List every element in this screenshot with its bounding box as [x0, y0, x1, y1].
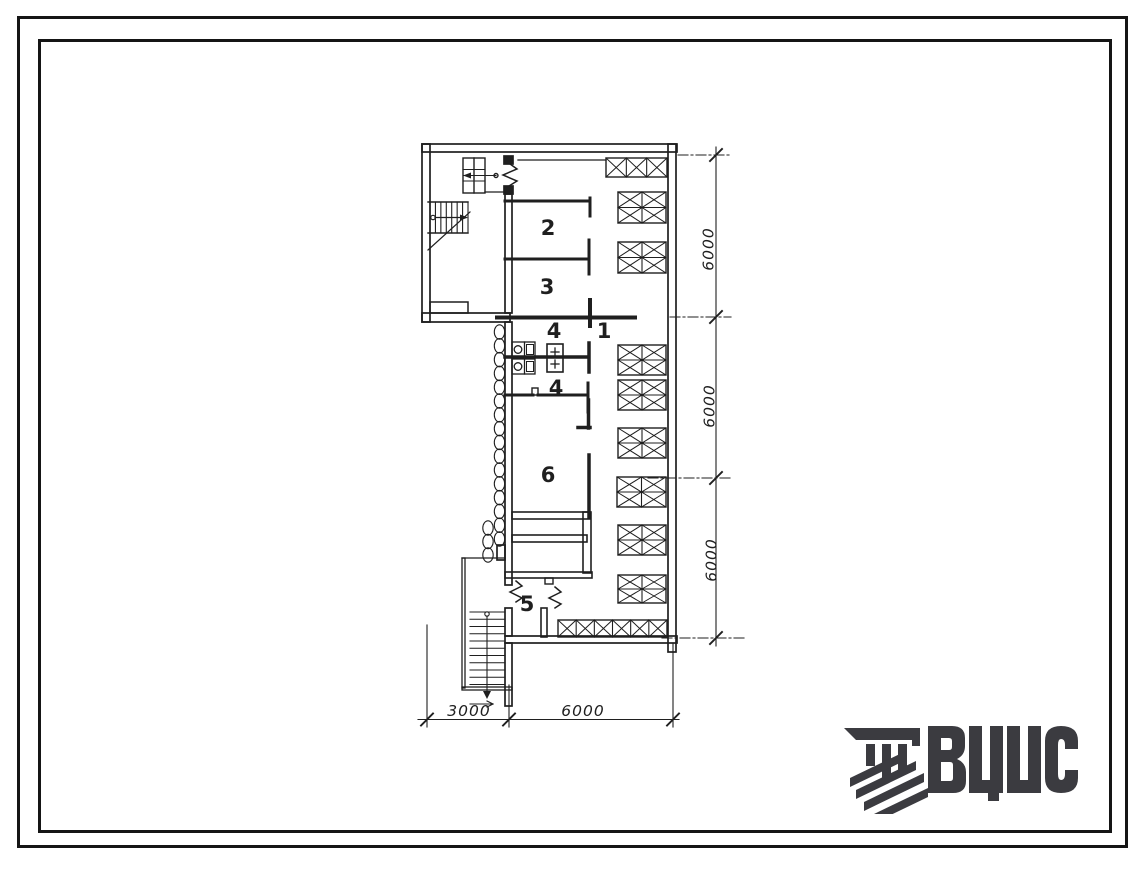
floor-plan-drawing: 2 3 4 1 4 6 5 6000 6000 6000 3000 6000: [400, 135, 750, 735]
dimension-lines: [418, 147, 745, 727]
room-label-4a: 4: [547, 319, 562, 343]
vestibule-stair: [428, 202, 470, 250]
room-label-3: 3: [540, 275, 555, 299]
dim-right-1: 6000: [700, 227, 718, 270]
duct-walls: [505, 512, 592, 637]
room-label-4b: 4: [549, 376, 564, 400]
dim-right-2: 6000: [701, 384, 719, 427]
entry-step-stair: [463, 158, 498, 193]
room-label-6: 6: [541, 463, 556, 487]
vestibule-bench: [430, 302, 468, 313]
stone-texture: [483, 325, 505, 562]
room-label-2: 2: [541, 216, 556, 240]
drawing-sheet: 2 3 4 1 4 6 5 6000 6000 6000 3000 6000 В…: [0, 0, 1139, 869]
dim-bottom-6000: 6000: [561, 702, 604, 720]
room-label-1: 1: [597, 319, 612, 343]
logo: ВЦИС: [840, 718, 1080, 814]
dim-bottom-3000: 3000: [447, 702, 490, 720]
dim-right-3: 6000: [703, 538, 721, 581]
logo-emblem-icon: [844, 728, 928, 814]
room-label-5: 5: [520, 592, 535, 616]
vent-units: [558, 158, 667, 637]
logo-letters: [928, 726, 1078, 801]
